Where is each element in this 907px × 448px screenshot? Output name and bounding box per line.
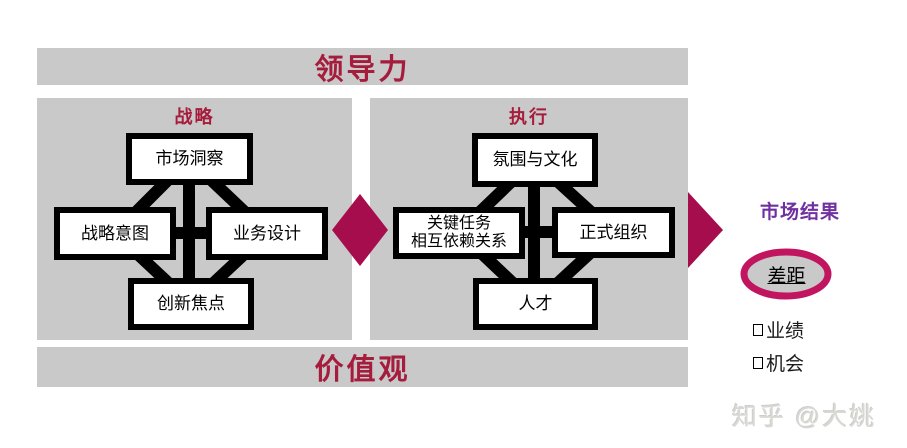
opportunity-label: 机会: [766, 349, 804, 376]
gap-label: 差距: [744, 261, 829, 288]
box-market-insight: 市场洞察: [126, 133, 253, 185]
box-innovation-focus-label: 创新焦点: [157, 294, 225, 314]
box-talent: 人才: [473, 278, 598, 330]
right-arrow: [688, 192, 723, 268]
box-key-tasks-line1: 关键任务: [427, 215, 491, 233]
zhihu-watermark: 知乎 @大姚: [732, 397, 876, 433]
diamond-connector: [332, 194, 388, 266]
box-climate-culture-label: 氛围与文化: [493, 150, 578, 170]
box-climate-culture: 氛围与文化: [472, 133, 598, 187]
box-strategic-intent-label: 战略意图: [81, 224, 149, 244]
square-bullet-icon: [753, 357, 763, 369]
box-innovation-focus: 创新焦点: [128, 278, 254, 330]
results-list: 业绩 机会: [753, 316, 804, 382]
box-business-design-label: 业务设计: [233, 224, 301, 244]
box-key-tasks: 关键任务 相互依赖关系: [393, 207, 525, 259]
box-business-design: 业务设计: [206, 207, 328, 260]
list-item: 机会: [753, 349, 804, 376]
box-market-insight-label: 市场洞察: [156, 149, 224, 169]
square-bullet-icon: [753, 324, 763, 336]
blm-diagram: 领导力 价值观 战略 执行: [0, 0, 907, 448]
performance-label: 业绩: [766, 316, 804, 343]
list-item: 业绩: [753, 316, 804, 343]
box-talent-label: 人才: [519, 294, 553, 314]
box-formal-organization: 正式组织: [552, 207, 675, 258]
box-key-tasks-line2: 相互依赖关系: [411, 233, 507, 251]
box-formal-organization-label: 正式组织: [580, 223, 648, 243]
box-strategic-intent: 战略意图: [54, 207, 176, 260]
market-results-title: 市场结果: [744, 197, 856, 224]
